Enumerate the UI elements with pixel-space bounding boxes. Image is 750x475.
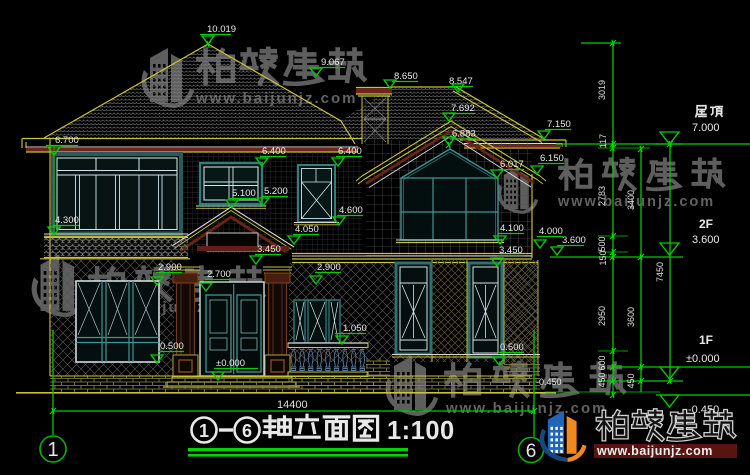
svg-text:3400: 3400 — [626, 190, 636, 210]
svg-text:7.000: 7.000 — [692, 122, 720, 134]
svg-text:1: 1 — [199, 421, 209, 441]
svg-text:6.400: 6.400 — [338, 146, 362, 157]
svg-text:±0.000: ±0.000 — [686, 353, 720, 365]
svg-text:www.baijunjz.com: www.baijunjz.com — [557, 194, 715, 210]
svg-text:4.300: 4.300 — [55, 215, 79, 226]
svg-text:1F: 1F — [699, 333, 713, 347]
svg-text:150: 150 — [598, 250, 608, 265]
svg-text:±0.000: ±0.000 — [216, 358, 245, 369]
svg-text:2.900: 2.900 — [158, 262, 182, 273]
svg-text:450: 450 — [626, 373, 636, 388]
svg-text:14400: 14400 — [277, 399, 308, 411]
svg-text:5.100: 5.100 — [232, 188, 256, 199]
svg-text:5.200: 5.200 — [264, 186, 288, 197]
svg-text:7450: 7450 — [655, 262, 665, 282]
svg-text:4.600: 4.600 — [339, 205, 363, 216]
svg-text:8.650: 8.650 — [394, 71, 418, 82]
svg-text:3.600: 3.600 — [692, 234, 720, 246]
svg-text:3.450: 3.450 — [499, 245, 523, 256]
svg-text:2950: 2950 — [597, 306, 607, 326]
svg-text:2.900: 2.900 — [317, 262, 341, 273]
svg-text:6: 6 — [526, 441, 537, 462]
svg-text:0.500: 0.500 — [500, 342, 524, 353]
svg-text:2F: 2F — [699, 217, 713, 231]
svg-text:4.100: 4.100 — [500, 223, 524, 234]
svg-text:117: 117 — [598, 134, 608, 148]
svg-text:3019: 3019 — [597, 80, 607, 100]
svg-text:www.baijunjz.com: www.baijunjz.com — [445, 400, 607, 417]
svg-text:9.067: 9.067 — [321, 57, 345, 68]
svg-text:600: 600 — [597, 355, 607, 370]
svg-text:3.600: 3.600 — [562, 235, 586, 246]
svg-text:1: 1 — [47, 439, 58, 461]
svg-text:2.700: 2.700 — [207, 269, 231, 280]
svg-text:6.150: 6.150 — [540, 153, 564, 164]
svg-text:7.150: 7.150 — [547, 119, 571, 130]
svg-text:6.700: 6.700 — [55, 135, 79, 146]
svg-text:2783: 2783 — [597, 186, 607, 206]
svg-text:6: 6 — [242, 421, 252, 441]
svg-text:4.050: 4.050 — [295, 224, 319, 235]
svg-text:450: 450 — [597, 372, 607, 387]
svg-text:10.019: 10.019 — [207, 24, 236, 35]
svg-text:6.883: 6.883 — [452, 129, 476, 140]
svg-text:3.450: 3.450 — [257, 244, 281, 255]
svg-text:www.baijunjz.com: www.baijunjz.com — [596, 444, 713, 458]
svg-text:4.000: 4.000 — [539, 226, 563, 237]
svg-text:6.400: 6.400 — [262, 146, 286, 157]
svg-text:0.500: 0.500 — [160, 341, 184, 352]
svg-text:500: 500 — [597, 236, 607, 251]
svg-text:6.017: 6.017 — [500, 159, 524, 170]
svg-text:3600: 3600 — [626, 307, 636, 327]
svg-text:1:100: 1:100 — [387, 417, 455, 445]
svg-text:-0.450: -0.450 — [536, 377, 562, 387]
svg-text:1.050: 1.050 — [343, 323, 367, 334]
